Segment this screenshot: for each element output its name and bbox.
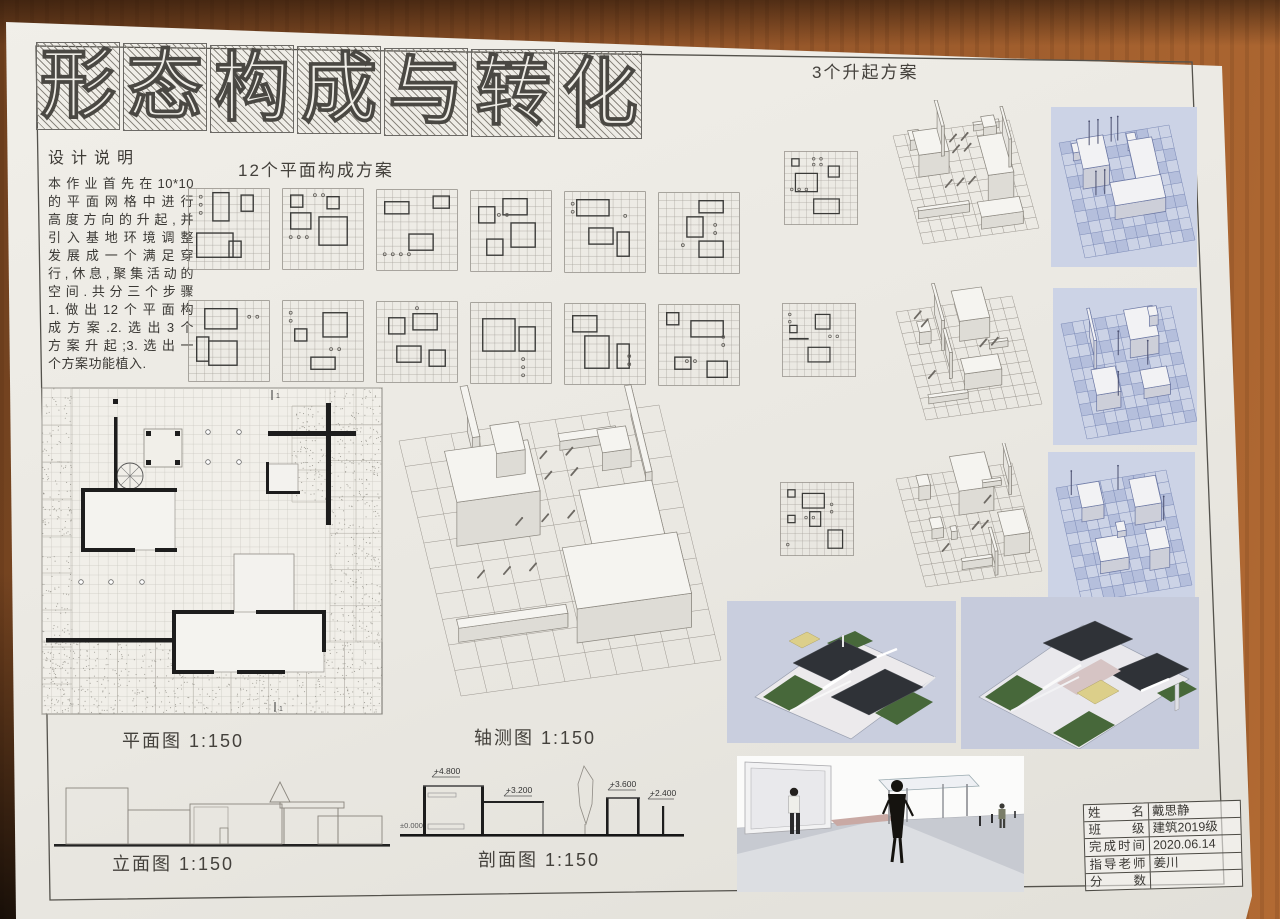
- notes-line: 1.做出12个平面构: [48, 301, 194, 319]
- plan-scheme-thumbnail: [375, 187, 459, 273]
- risen-grid-plan-1: [783, 148, 859, 228]
- title-block: 姓 名 戴思静 班 级 建筑2019级 完成时间 2020.06.14 指导老师…: [1083, 800, 1243, 891]
- risen-render-photo-1: [1051, 106, 1197, 268]
- elevation-drawing: [52, 776, 402, 854]
- field-value-score: [1151, 878, 1242, 881]
- caption-elevation: 立面图 1:150: [112, 850, 234, 876]
- svg-text:+2.400: +2.400: [650, 788, 677, 798]
- caption-plan: 平面图 1:150: [122, 727, 244, 753]
- design-notes-title: 设计说明: [48, 150, 194, 168]
- floor-plan-drawing: 11: [40, 386, 384, 716]
- title-char: 构: [210, 45, 294, 133]
- plan-scheme-thumbnail: [281, 298, 365, 384]
- label-3-risen-schemes: 3个升起方案: [812, 58, 918, 83]
- field-label-advisor: 指导老师: [1085, 855, 1150, 873]
- field-label-date: 完成时间: [1085, 838, 1150, 856]
- field-value-date: 2020.06.14: [1150, 835, 1241, 854]
- plan-scheme-thumbnail: [281, 186, 365, 272]
- risen-render-photo-3: [1048, 452, 1195, 612]
- plan-scheme-thumbnail: [563, 189, 647, 275]
- notes-line: 高度方向的升起,并: [48, 211, 194, 229]
- risen-grid-plan-2: [781, 300, 857, 380]
- plan-scheme-thumbnail: [657, 190, 741, 276]
- field-value-name: 戴思静: [1149, 801, 1240, 820]
- risen-axonometric-2: [891, 276, 1046, 434]
- svg-text:1: 1: [279, 706, 283, 713]
- design-notes: 设计说明 本作业首先在10*10 的平面网格中进行 高度方向的升起,并 引入基地…: [48, 150, 194, 373]
- notes-line: 行,休息,聚集活动的: [48, 265, 194, 283]
- title-char: 化: [558, 51, 642, 139]
- risen-axonometric-1: [888, 100, 1043, 260]
- svg-text:+4.800: +4.800: [434, 766, 461, 776]
- plan-scheme-thumbnail: [563, 301, 647, 387]
- plan-scheme-thumbnail: [657, 302, 741, 388]
- notes-line: 个方案功能植入.: [48, 355, 194, 373]
- notes-line: 引入基地环境调整: [48, 229, 194, 247]
- risen-axonometric-3: [891, 443, 1046, 601]
- caption-axon: 轴测图 1:150: [474, 724, 596, 750]
- title-char: 形: [36, 42, 120, 130]
- axonometric-drawing: [393, 383, 725, 719]
- risen-render-photo-2: [1053, 288, 1197, 445]
- svg-text:+3.200: +3.200: [506, 785, 533, 795]
- svg-text:+3.600: +3.600: [610, 779, 637, 789]
- label-12-plan-schemes: 12个平面构成方案: [238, 156, 394, 181]
- field-value-class: 建筑2019级: [1149, 818, 1240, 837]
- title-block-row: 分 数: [1086, 870, 1242, 891]
- photo-of-board: 形 态 构 成 与 转 化 3个升起方案 设计说明 本作业首先在10*10 的平…: [0, 0, 1280, 919]
- field-value-advisor: 姜川: [1150, 852, 1241, 871]
- field-label-class: 班 级: [1084, 821, 1149, 839]
- notes-line: 空间.共分三个步骤: [48, 283, 194, 301]
- plan-scheme-thumbnail: [187, 298, 271, 384]
- risen-grid-plan-3: [779, 478, 855, 560]
- caption-section: 剖面图 1:150: [478, 846, 600, 872]
- notes-line: 成方案.2.选出3个: [48, 319, 194, 337]
- aerial-render-photo-1: [727, 601, 956, 743]
- plan-scheme-thumbnail: [469, 300, 553, 386]
- title-char: 态: [123, 43, 207, 131]
- section-drawing: +4.800+3.200+3.600+2.400±0.000: [398, 760, 698, 852]
- title-char: 与: [384, 48, 468, 136]
- title-char: 成: [297, 46, 381, 134]
- notes-line: 方案升起;3.选出一: [48, 337, 194, 355]
- plan-scheme-thumbnail: [375, 299, 459, 385]
- svg-text:±0.000: ±0.000: [400, 821, 423, 830]
- plan-scheme-thumbnail: [187, 186, 271, 272]
- notes-line: 的平面网格中进行: [48, 193, 194, 211]
- aerial-render-photo-2: [961, 597, 1199, 749]
- field-label-score: 分 数: [1086, 872, 1151, 890]
- notes-line: 发展成一个满足穿: [48, 247, 194, 265]
- perspective-render-photo: [737, 756, 1024, 892]
- svg-text:1: 1: [276, 393, 280, 400]
- plan-scheme-thumbnail: [469, 188, 553, 274]
- title-char: 转: [471, 49, 555, 137]
- notes-line: 本作业首先在10*10: [48, 175, 194, 193]
- field-label-name: 姓 名: [1084, 803, 1149, 821]
